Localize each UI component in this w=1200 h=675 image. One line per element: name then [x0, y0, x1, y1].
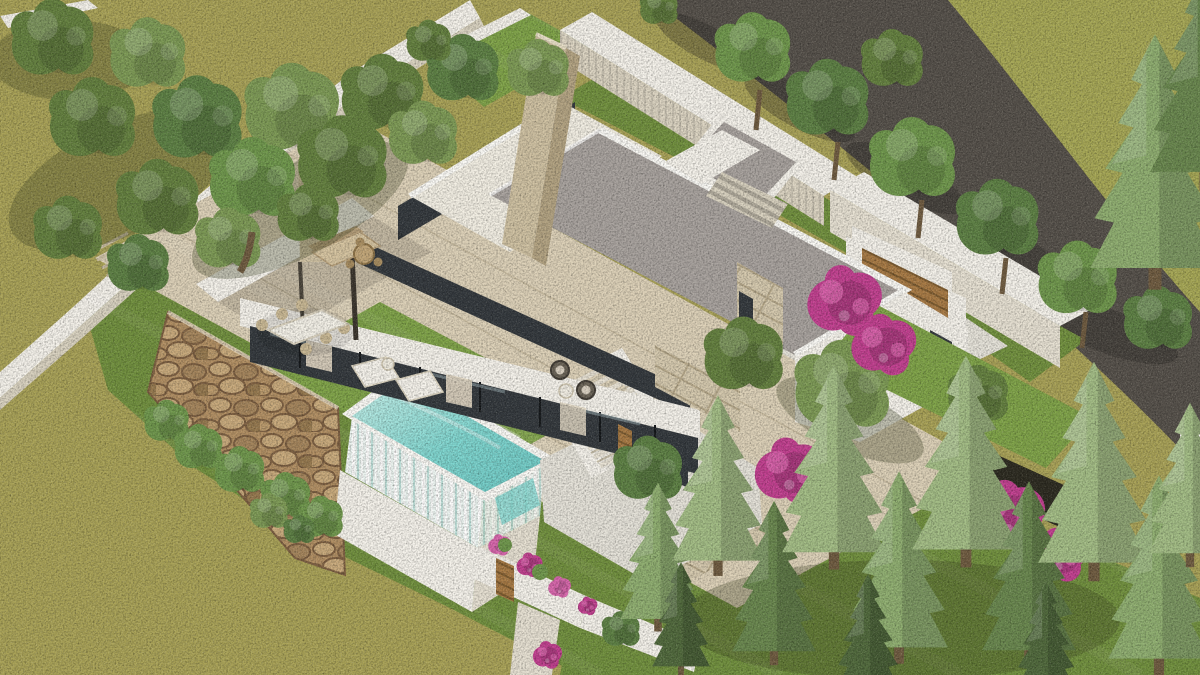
- aerial-render: [0, 0, 1200, 675]
- grain-overlay-light: [0, 0, 1200, 675]
